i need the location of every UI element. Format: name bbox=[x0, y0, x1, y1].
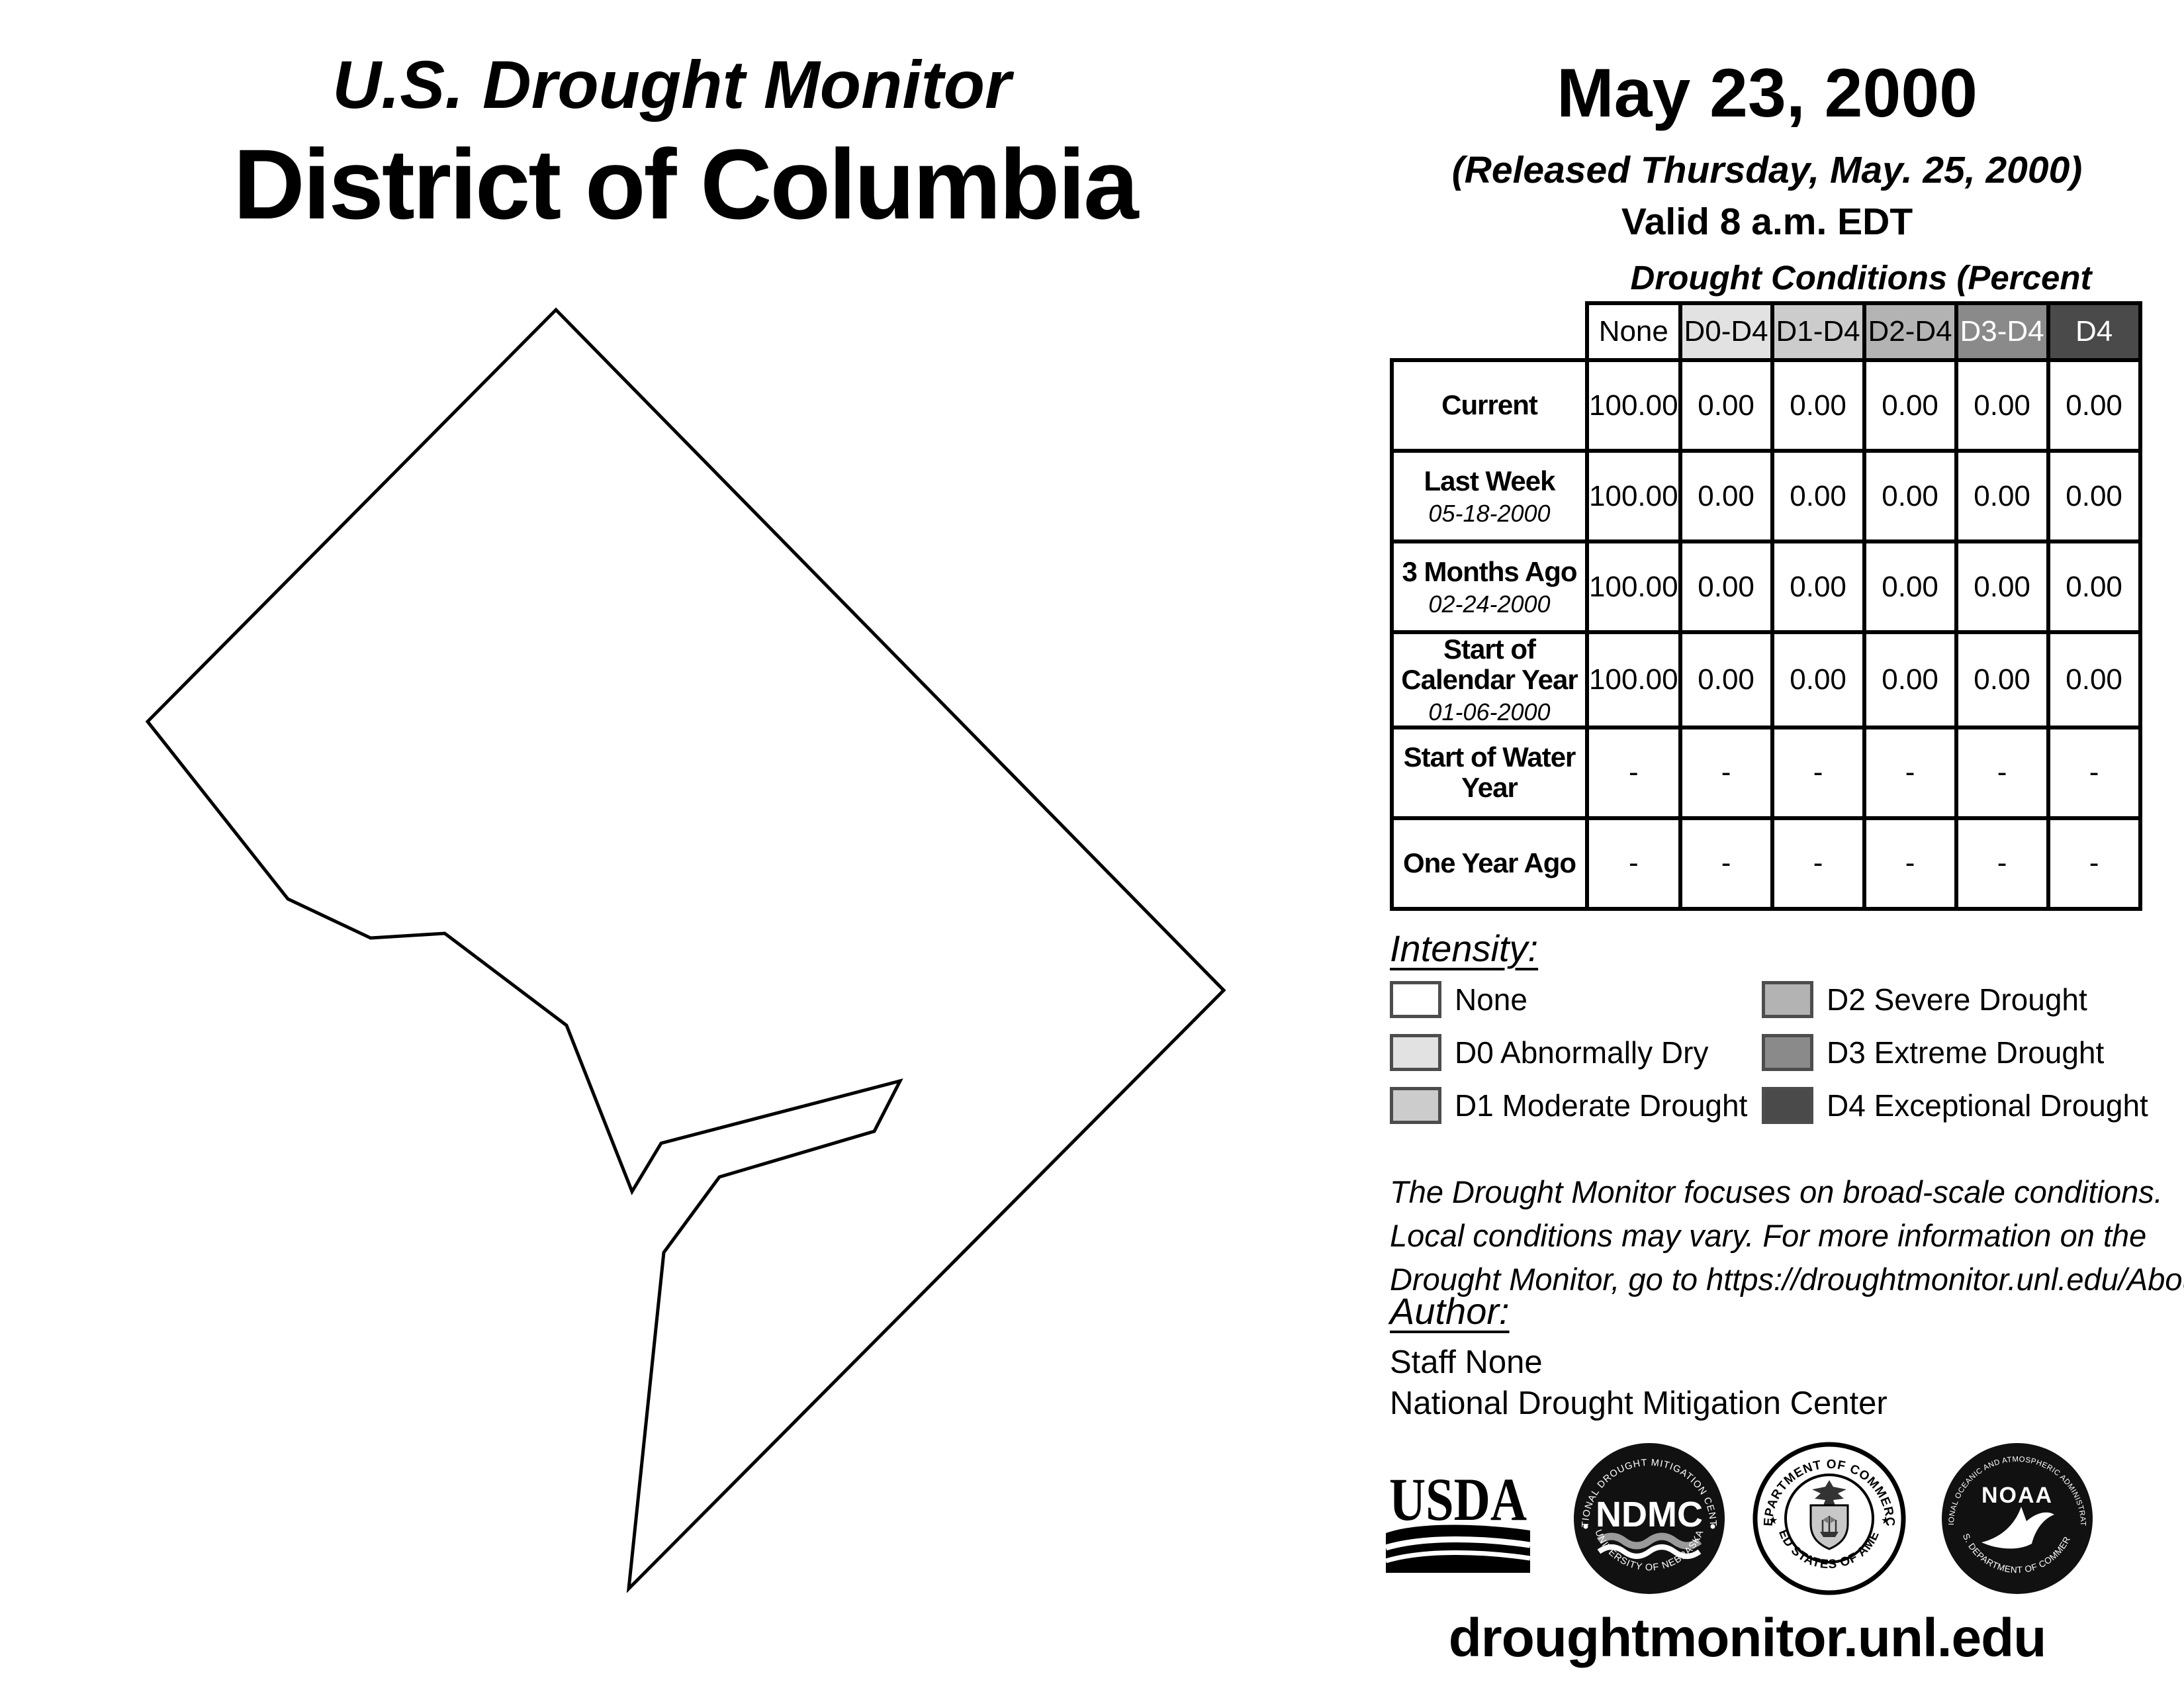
legend-swatch-d0 bbox=[1390, 1034, 1441, 1071]
drought-monitor-report-page: { "header": { "monitor_title": "U.S. Dro… bbox=[0, 0, 2184, 1688]
table-row-one-year-ago: One Year Ago - - - - - - bbox=[1392, 818, 2140, 909]
ndmc-dot-left bbox=[1584, 1524, 1588, 1529]
value-cell: 0.00 bbox=[1772, 541, 1864, 632]
value-cell: - bbox=[2048, 818, 2140, 909]
drought-conditions-table: None D0-D4 D1-D4 D2-D4 D3-D4 D4 Current … bbox=[1390, 301, 2142, 911]
value-cell: 0.00 bbox=[1680, 360, 1772, 451]
col-header-d4: D4 bbox=[2048, 303, 2140, 360]
dc-boundary-polygon bbox=[148, 310, 1224, 1589]
legend-swatch-d3 bbox=[1762, 1034, 1813, 1071]
value-cell: 100.00 bbox=[1587, 632, 1680, 727]
value-cell: 0.00 bbox=[1956, 360, 2048, 451]
legend-swatch-d1 bbox=[1390, 1087, 1441, 1124]
value-cell: - bbox=[1680, 727, 1772, 818]
value-cell: 0.00 bbox=[1772, 632, 1864, 727]
doc-star-right: ★ bbox=[1881, 1515, 1890, 1526]
row-date: 01-06-2000 bbox=[1394, 699, 1585, 726]
usda-logo: USDA bbox=[1386, 1464, 1530, 1573]
intensity-title: Intensity: bbox=[1390, 927, 1538, 970]
row-label: Current bbox=[1392, 360, 1587, 451]
ndmc-center-text: NDMC bbox=[1596, 1495, 1703, 1534]
col-header-d0d4: D0-D4 bbox=[1680, 303, 1772, 360]
commerce-seal: DEPARTMENT OF COMMERCE UNITED STATES OF … bbox=[1752, 1442, 1906, 1595]
value-cell: 0.00 bbox=[2048, 360, 2140, 451]
legend-label-d0: D0 Abnormally Dry bbox=[1455, 1034, 1708, 1071]
value-cell: 0.00 bbox=[1956, 451, 2048, 541]
legend-label-none: None bbox=[1455, 981, 1527, 1018]
ndmc-seal: NATIONAL DROUGHT MITIGATION CENTER NDMC … bbox=[1572, 1442, 1726, 1595]
table-row-last-week: Last Week05-18-2000 100.00 0.00 0.00 0.0… bbox=[1392, 451, 2140, 541]
value-cell: 0.00 bbox=[2048, 451, 2140, 541]
value-cell: 0.00 bbox=[1772, 360, 1864, 451]
value-cell: 0.00 bbox=[2048, 541, 2140, 632]
noaa-seal: NATIONAL OCEANIC AND ATMOSPHERIC ADMINIS… bbox=[1940, 1442, 2094, 1595]
table-row-start-calendar-year: Start of Calendar Year01-06-2000 100.00 … bbox=[1392, 632, 2140, 727]
row-label: One Year Ago bbox=[1392, 818, 1587, 909]
value-cell: 100.00 bbox=[1587, 541, 1680, 632]
value-cell: 100.00 bbox=[1587, 360, 1680, 451]
legend-swatch-d2 bbox=[1762, 981, 1813, 1018]
col-header-d2d4: D2-D4 bbox=[1864, 303, 1956, 360]
row-label: Start of Water Year bbox=[1392, 727, 1587, 818]
disclaimer-line: The Drought Monitor focuses on broad-sca… bbox=[1390, 1170, 2184, 1214]
doc-star-left: ★ bbox=[1768, 1515, 1778, 1526]
value-cell: - bbox=[1587, 818, 1680, 909]
released-date: (Released Thursday, May. 25, 2000) bbox=[1390, 148, 2144, 192]
author-organization: National Drought Mitigation Center bbox=[1390, 1385, 1888, 1422]
table-row-current: Current 100.00 0.00 0.00 0.00 0.00 0.00 bbox=[1392, 360, 2140, 451]
row-date: 05-18-2000 bbox=[1394, 500, 1585, 527]
usda-logo-text: USDA bbox=[1389, 1466, 1527, 1533]
disclaimer-text: The Drought Monitor focuses on broad-sca… bbox=[1390, 1170, 2184, 1301]
table-row-start-water-year: Start of Water Year - - - - - - bbox=[1392, 727, 2140, 818]
value-cell: - bbox=[1680, 818, 1772, 909]
value-cell: - bbox=[1587, 727, 1680, 818]
table-row-3-months-ago: 3 Months Ago02-24-2000 100.00 0.00 0.00 … bbox=[1392, 541, 2140, 632]
row-date: 02-24-2000 bbox=[1394, 591, 1585, 618]
value-cell: 0.00 bbox=[1680, 451, 1772, 541]
value-cell: 0.00 bbox=[1680, 541, 1772, 632]
value-cell: - bbox=[1772, 727, 1864, 818]
table-corner-cell bbox=[1392, 303, 1587, 360]
value-cell: - bbox=[1864, 727, 1956, 818]
value-cell: - bbox=[1864, 818, 1956, 909]
table-header-row: None D0-D4 D1-D4 D2-D4 D3-D4 D4 bbox=[1392, 303, 2140, 360]
col-header-d1d4: D1-D4 bbox=[1772, 303, 1864, 360]
legend-swatch-d4 bbox=[1762, 1087, 1813, 1124]
author-title: Author: bbox=[1390, 1289, 1510, 1333]
region-title: District of Columbia bbox=[132, 127, 1238, 242]
author-name: Staff None bbox=[1390, 1344, 1543, 1381]
legend-label-d3: D3 Extreme Drought bbox=[1827, 1034, 2104, 1071]
monitor-title: U.S. Drought Monitor bbox=[199, 46, 1145, 124]
row-label: Start of Calendar Year01-06-2000 bbox=[1392, 632, 1587, 727]
value-cell: 0.00 bbox=[1772, 451, 1864, 541]
value-cell: - bbox=[2048, 727, 2140, 818]
value-cell: 100.00 bbox=[1587, 451, 1680, 541]
col-header-d3d4: D3-D4 bbox=[1956, 303, 2048, 360]
value-cell: 0.00 bbox=[2048, 632, 2140, 727]
value-cell: 0.00 bbox=[1864, 632, 1956, 727]
legend-label-d1: D1 Moderate Drought bbox=[1455, 1087, 1747, 1124]
legend-swatch-none bbox=[1390, 981, 1441, 1018]
value-cell: 0.00 bbox=[1864, 360, 1956, 451]
legend-label-d4: D4 Exceptional Drought bbox=[1827, 1087, 2148, 1124]
row-label: Last Week05-18-2000 bbox=[1392, 451, 1587, 541]
noaa-center-text: NOAA bbox=[1981, 1483, 2053, 1508]
value-cell: 0.00 bbox=[1680, 632, 1772, 727]
report-date: May 23, 2000 bbox=[1390, 54, 2144, 133]
ndmc-dot-right bbox=[1711, 1524, 1715, 1529]
disclaimer-line: Local conditions may vary. For more info… bbox=[1390, 1214, 2184, 1258]
value-cell: 0.00 bbox=[1956, 541, 2048, 632]
valid-time: Valid 8 a.m. EDT bbox=[1390, 200, 2144, 244]
value-cell: 0.00 bbox=[1956, 632, 2048, 727]
col-header-none: None bbox=[1587, 303, 1680, 360]
value-cell: 0.00 bbox=[1864, 541, 1956, 632]
value-cell: 0.00 bbox=[1864, 451, 1956, 541]
value-cell: - bbox=[1956, 727, 2048, 818]
footer-url: droughtmonitor.unl.edu bbox=[1357, 1607, 2138, 1669]
row-label: 3 Months Ago02-24-2000 bbox=[1392, 541, 1587, 632]
value-cell: - bbox=[1772, 818, 1864, 909]
value-cell: - bbox=[1956, 818, 2048, 909]
legend-label-d2: D2 Severe Drought bbox=[1827, 981, 2087, 1018]
usda-field-shape bbox=[1386, 1525, 1530, 1573]
